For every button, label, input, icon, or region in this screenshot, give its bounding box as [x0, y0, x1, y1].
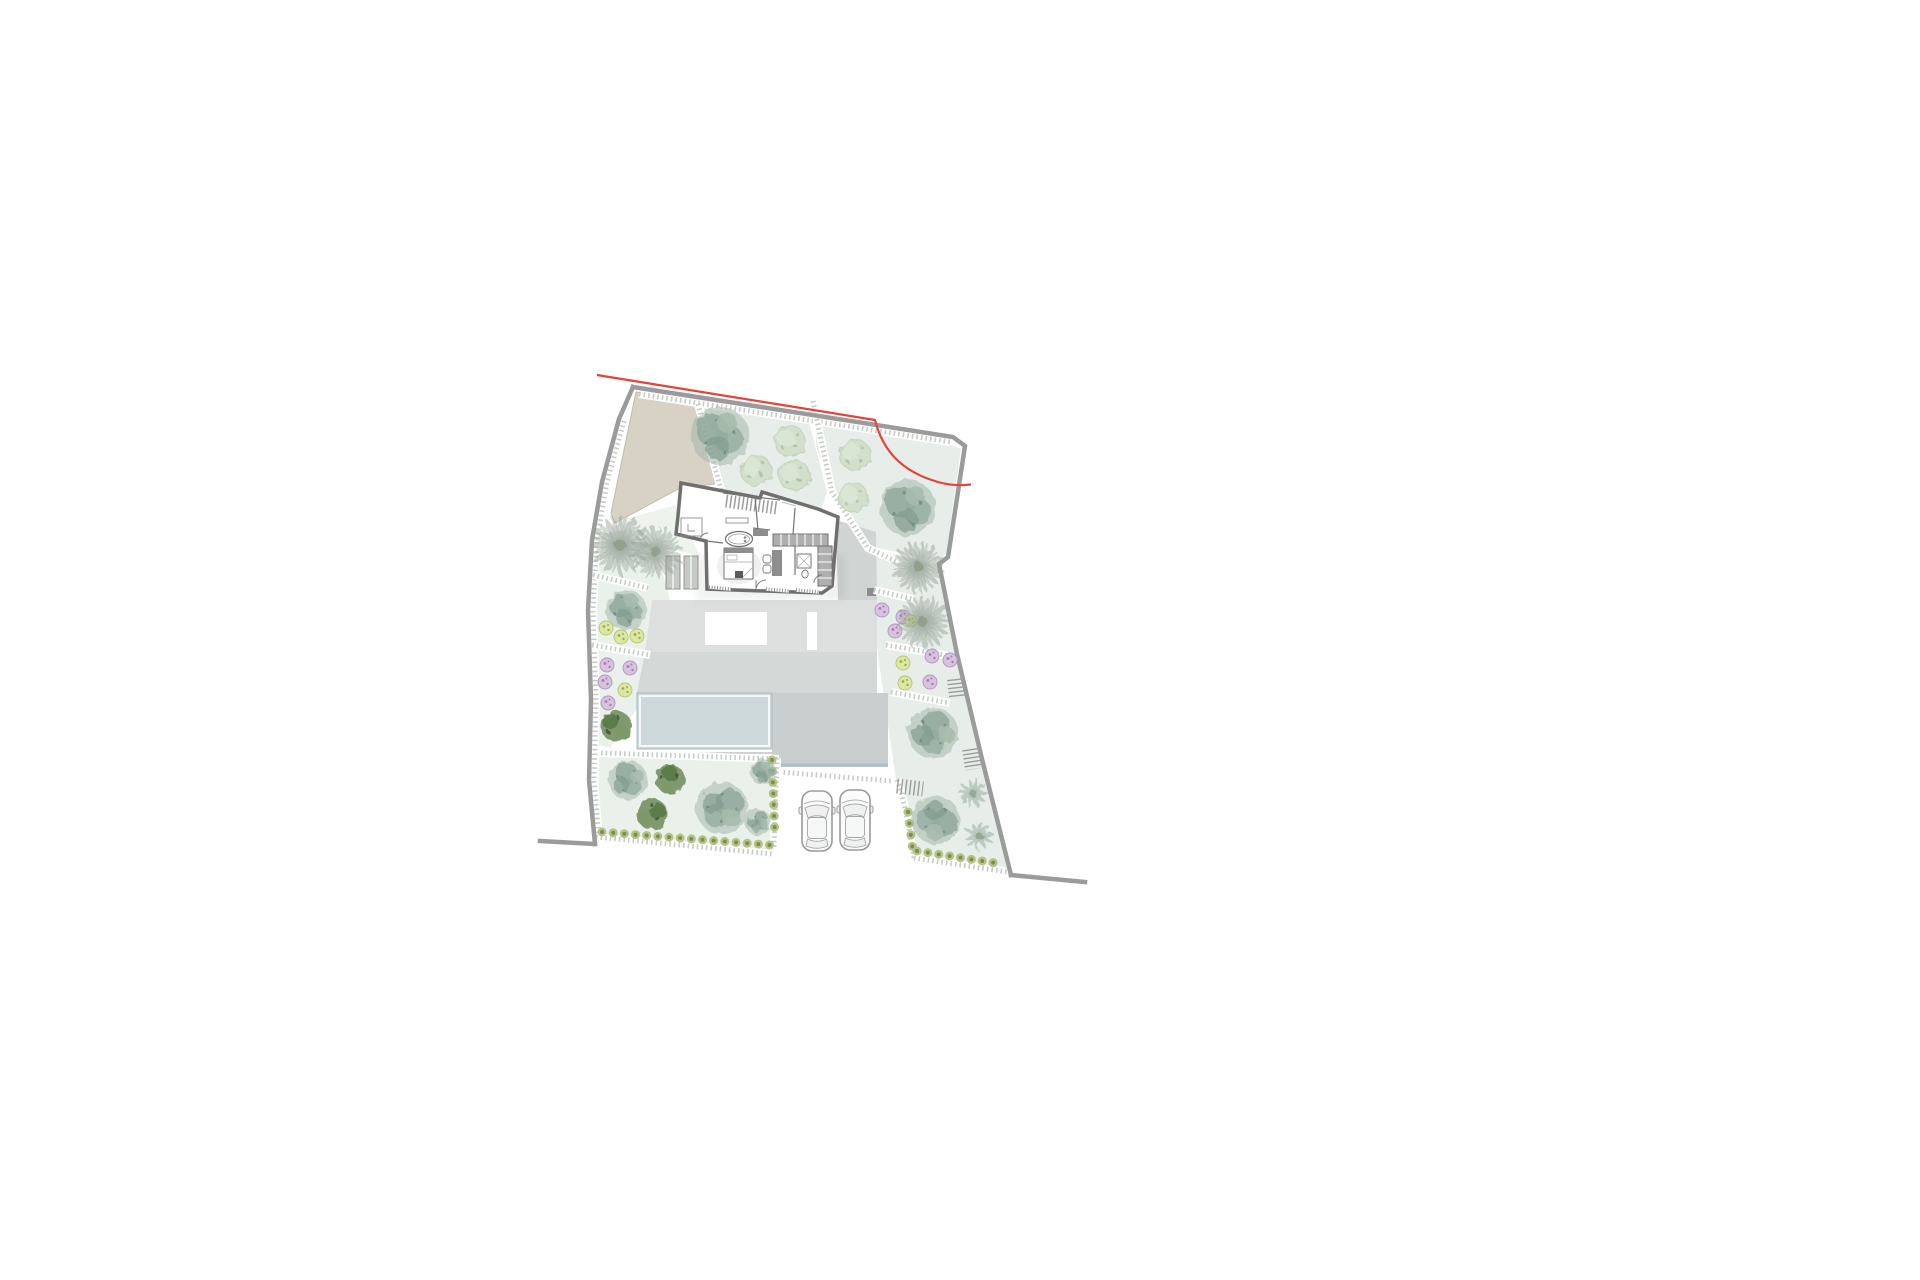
bed-pillow	[727, 555, 737, 560]
wardrobe-row-v	[818, 546, 832, 586]
bed-blanket-item	[735, 571, 743, 578]
purple-shrub	[875, 603, 889, 617]
pale-tree	[838, 482, 867, 511]
pool	[637, 693, 772, 749]
yellow-shrub	[599, 621, 613, 635]
boundary-ext-southwest	[540, 841, 595, 844]
olive-tree	[880, 480, 936, 536]
pale-tree	[775, 426, 806, 457]
yellow-shrub	[618, 683, 632, 697]
parking-area	[799, 790, 873, 851]
tub-faucet	[744, 536, 747, 539]
bed	[717, 548, 761, 584]
toilet	[802, 570, 808, 578]
olive-tree	[691, 407, 749, 465]
page	[0, 0, 1920, 1280]
terrace-mid	[637, 652, 877, 693]
purple-shrub	[598, 675, 612, 689]
pale-tree	[741, 455, 772, 486]
olive-tree-small	[750, 759, 776, 785]
purple-shrub	[943, 653, 957, 667]
car	[799, 791, 835, 851]
yellow-shrub	[614, 630, 628, 644]
dark-shrub-tree	[601, 711, 632, 742]
window-hatch	[796, 590, 819, 592]
path-south-slab	[779, 772, 892, 781]
window-hatch	[766, 589, 789, 591]
terrace-gap	[807, 612, 817, 650]
tub-faucet	[744, 540, 747, 543]
pale-tree	[779, 460, 810, 491]
terrace-void	[705, 612, 767, 645]
yellow-shrub	[898, 676, 912, 690]
site-plan-canvas	[0, 0, 1920, 1280]
purple-shrub	[623, 661, 637, 675]
terrace-lower-slab	[772, 693, 888, 767]
purple-shrub	[925, 649, 939, 663]
yellow-shrub	[630, 629, 644, 643]
pale-tree	[840, 440, 871, 471]
pool-water	[637, 693, 772, 749]
dresser	[753, 529, 768, 536]
purple-shrub	[923, 675, 937, 689]
vanity-counter	[772, 550, 782, 576]
bed-headboard	[724, 548, 753, 553]
sink	[763, 565, 771, 573]
bathtub	[726, 532, 753, 547]
purple-shrub	[601, 696, 615, 710]
car	[837, 790, 873, 850]
yellow-shrub	[896, 656, 910, 670]
sink	[763, 555, 771, 563]
boundary-ext-southeast	[1011, 875, 1085, 882]
purple-shrub	[600, 658, 614, 672]
